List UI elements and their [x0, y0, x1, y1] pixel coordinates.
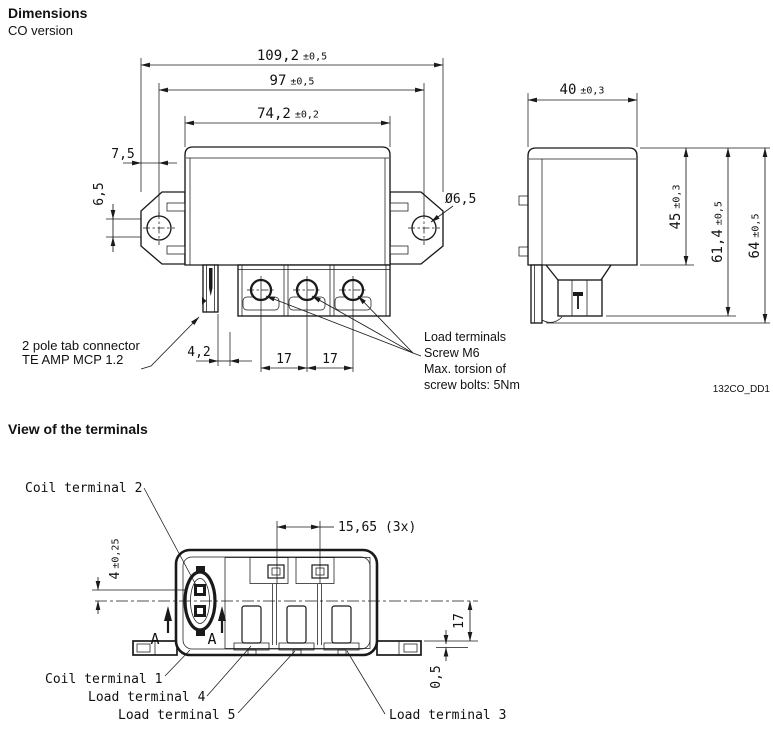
dim-hole-diameter: Ø6,5	[445, 192, 476, 207]
dim-height-to-terminals: 61,4±0,5	[710, 201, 726, 263]
front-view: 109,2±0,5 97±0,5 74,2±0,2 7,5 6,5 Ø6,5	[22, 48, 520, 392]
load-terminals-note: Load terminals Screw M6 Max. torsion of …	[266, 296, 520, 392]
dim-depth: 40±0,3	[560, 82, 605, 98]
tab-connector-note-line2: TE AMP MCP 1.2	[22, 352, 123, 367]
side-view-body	[519, 148, 637, 265]
load-terminals-note-line2: Screw M6	[424, 346, 480, 360]
tab-connector-note-line1: 2 pole tab connector	[22, 338, 140, 353]
dim-body-width: 74,2±0,2	[257, 106, 319, 122]
terminal-view-heading: View of the terminals	[8, 421, 148, 437]
dim-terminal-pitch-left: 17	[276, 352, 292, 367]
load-terminals-note-line3: Max. torsion of	[424, 362, 507, 376]
dim-overall-height: 64±0,5	[747, 214, 763, 259]
dim-overall-width: 109,2±0,5	[257, 48, 327, 64]
section-marker-a-right: A	[207, 630, 216, 648]
dim-body-height: 45±0,3	[668, 185, 684, 230]
dim-mounting-span: 97±0,5	[270, 73, 315, 89]
label-coil-terminal-2: Coil terminal 2	[25, 481, 142, 496]
technical-drawing: Dimensions CO version View of the termin…	[0, 0, 773, 729]
load-terminals-note-line1: Load terminals	[424, 330, 506, 344]
page-subtitle: CO version	[8, 23, 73, 38]
label-coil-terminal-1: Coil terminal 1	[45, 672, 162, 687]
dim-tab-offset: 4,2	[187, 345, 210, 360]
page-title: Dimensions	[8, 5, 88, 21]
side-view-terminals	[531, 265, 611, 323]
dim-center-to-base: 17	[452, 613, 467, 629]
front-view-body	[185, 147, 390, 265]
dim-standoff: 0,5	[429, 665, 444, 688]
section-marker-a-left: A	[150, 630, 159, 648]
terminal-view: A A 15,65 (3x) 4±0,25 17	[25, 481, 506, 723]
dim-ear-to-hole: 7,5	[111, 147, 134, 162]
dim-terminal-pitch-right: 17	[322, 352, 338, 367]
load-terminals-note-line4: screw bolts: 5Nm	[424, 378, 520, 392]
dim-terminal-pitch: 15,65 (3x)	[338, 520, 416, 535]
front-view-tab-connector	[202, 265, 218, 312]
label-load-terminal-4: Load terminal 4	[88, 690, 206, 705]
side-view: 40±0,3 45±0,3 61,4±0,5 64±0,5	[519, 82, 770, 323]
datasheet-dimensions-page: Dimensions CO version View of the termin…	[0, 0, 773, 729]
label-load-terminal-3: Load terminal 3	[389, 708, 506, 723]
dim-hole-offset: 6,5	[92, 182, 107, 205]
drawing-code: 132CO_DD1	[713, 384, 771, 395]
label-load-terminal-5: Load terminal 5	[118, 708, 235, 723]
tab-connector-note: 2 pole tab connector TE AMP MCP 1.2	[22, 317, 199, 369]
dim-coil-pin-offset: 4±0,25	[108, 539, 123, 580]
